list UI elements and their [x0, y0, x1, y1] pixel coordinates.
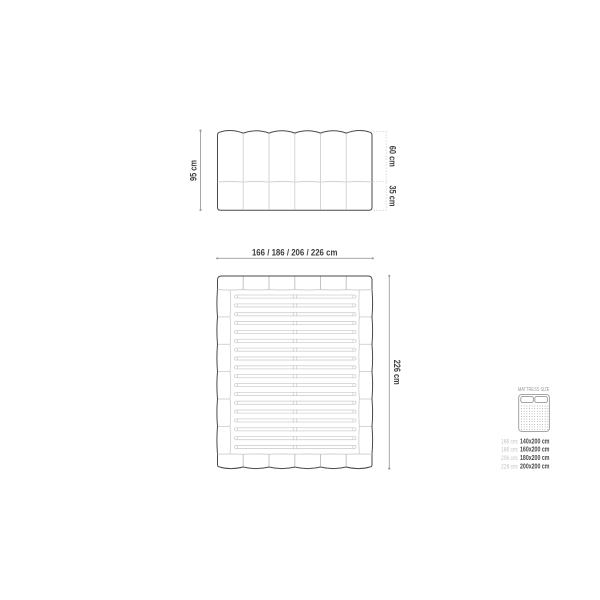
svg-text:95 cm: 95 cm [189, 160, 199, 181]
svg-text:206 cm:: 206 cm: [501, 455, 519, 462]
svg-text:166 cm:: 166 cm: [501, 438, 519, 445]
svg-text:226 cm:: 226 cm: [501, 463, 519, 470]
svg-text:200x200 cm: 200x200 cm [520, 461, 550, 470]
svg-text:60 cm: 60 cm [388, 146, 398, 167]
svg-text:35 cm: 35 cm [388, 186, 398, 207]
svg-text:186 cm:: 186 cm: [501, 447, 519, 454]
svg-text:226 cm: 226 cm [392, 360, 402, 385]
svg-text:MATTRESS SIZE: MATTRESS SIZE [518, 387, 550, 393]
svg-text:166 / 186 / 206 / 226 cm: 166 / 186 / 206 / 226 cm [252, 248, 338, 258]
